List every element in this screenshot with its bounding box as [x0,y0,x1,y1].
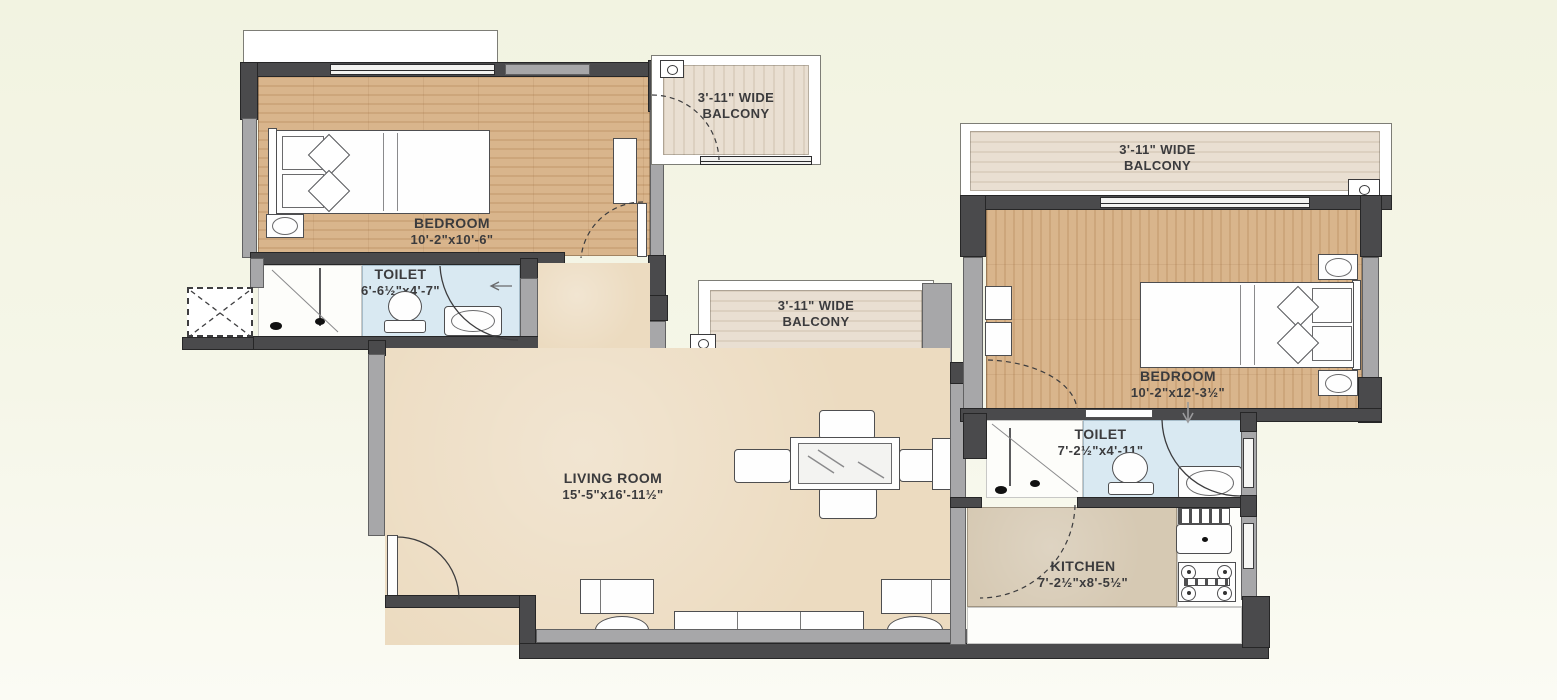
bed2-lamp-bottom [1325,374,1352,393]
balcony-center-label: 3'-11" WIDE BALCONY [710,298,922,330]
toilet1-shower-tap [315,318,325,325]
balcony-top-mid-sliding-window [700,156,812,165]
bed2-sheet-line1 [1240,285,1241,365]
balcony-top-mid-column [660,60,684,78]
dining-chair-bottom [819,487,877,519]
balcony-top-mid-line2: BALCONY [660,106,812,122]
bed1-lamp [272,217,298,235]
kitchen-label: KITCHEN 7'-2½"x8'-5½" [998,558,1168,591]
bedroom1-wall-top-light [505,64,590,75]
bedroom2-wall-left-dark [960,195,986,257]
armchair-right [881,579,952,614]
balcony-top-right-line1: 3'-11" WIDE [1055,142,1260,158]
bedroom2-wardrobe-a [985,286,1012,320]
toilet2-shower-pole [1009,428,1011,486]
armchair-left [580,579,654,614]
toilet1-wc-bowl [388,291,422,322]
living-wall-step-h [385,595,525,608]
bedroom2-wall-right-dark [1360,195,1382,257]
entrance-door-leaf [387,535,398,599]
service-shaft [187,287,253,337]
balcony-center-line1: 3'-11" WIDE [710,298,922,314]
toilet1-wall-left [250,258,264,288]
kitchen-window-1 [1243,438,1254,488]
living-wall-bottom-lining [536,629,967,643]
shaft-wall-bottom [182,337,254,350]
toilet2-wc-base [1108,482,1154,495]
living-wall-left [368,354,385,536]
living-wall-step-v [519,595,536,647]
bedroom2-label: BEDROOM 10'-2"x12'-3½" [1088,368,1268,401]
toilet2-wc-bowl [1112,452,1148,484]
toilet2-shower-tap [1030,480,1040,487]
bedroom1-wall-right-lower [648,255,666,300]
balcony-top-right-line2: BALCONY [1055,158,1260,174]
bedroom1-window [330,64,495,75]
roof-projection [243,30,498,63]
utility-strip [967,607,1242,644]
kitchen-sink-drain [1202,537,1208,542]
floor-plan: BEDROOM 10'-2"x10'-6" TOILET 6'-6½"x4'-7… [0,0,1557,700]
stove-grill [1184,578,1230,586]
balcony-top-mid-line1: 3'-11" WIDE [660,90,812,106]
bedroom1-wall-left-dark [240,62,258,120]
toilet2-wall-left-dark [963,413,987,459]
toilet2-dims: 7'-2½"x4'-11" [1028,443,1173,459]
kitchen-drainboard [1178,508,1230,524]
bedroom2-sliding-door [1100,197,1310,208]
kitchen-window-2 [1243,523,1254,569]
kitchen-floor [967,507,1177,607]
bedroom2-dims: 10'-2"x12'-3½" [1088,385,1268,401]
living-floor-upper [538,263,650,355]
plan-corner-bottom-right [1242,596,1270,648]
toilet2-washbasin-bowl [1186,470,1234,496]
living-name: LIVING ROOM [528,470,698,487]
kitchen-wall-top-left [950,497,982,508]
kitchen-dims: 7'-2½"x8'-5½" [998,575,1168,591]
toilet1-washbasin-bowl [451,310,495,332]
bedroom1-wall-left [242,118,257,258]
dining-table-glass [798,443,892,484]
bed1-sheet-line1 [383,133,384,211]
bedroom2-wall-left [963,257,983,410]
bedroom1-wardrobe [613,138,637,204]
living-dims: 15'-5"x16'-11½" [528,487,698,503]
bedroom1-door-leaf [637,203,647,257]
bedroom1-name: BEDROOM [368,215,536,232]
kitchen-wall-right-mid [1240,495,1257,517]
bedroom2-door-leaf [1085,409,1153,418]
living-label: LIVING ROOM 15'-5"x16'-11½" [528,470,698,503]
toilet1-wall-right-dark [520,258,538,280]
balcony-top-mid-label: 3'-11" WIDE BALCONY [660,90,812,122]
bed2-lamp-top [1325,258,1352,277]
stove-burner-3 [1181,586,1196,601]
bedroom2-name: BEDROOM [1088,368,1268,385]
toilet1-wall-right [520,278,538,338]
bedroom1-label: BEDROOM 10'-2"x10'-6" [368,215,536,248]
bed1-sheet-line2 [397,133,398,211]
kitchen-wall-right-cap-top [1240,412,1257,432]
toilet2-name: TOILET [1028,426,1173,443]
toilet1-wc-tank [384,320,426,333]
balcony-top-right-label: 3'-11" WIDE BALCONY [1055,142,1260,174]
armchair-right-back [931,580,932,613]
kitchen-name: KITCHEN [998,558,1168,575]
toilet2-drain [995,486,1007,494]
bedroom2-wall-right [1362,257,1379,379]
plan-wall-bottom [519,643,1269,659]
bedroom1-dims: 10'-2"x10'-6" [368,232,536,248]
armchair-left-back [600,580,601,613]
toilet2-label: TOILET 7'-2½"x4'-11" [1028,426,1173,459]
kitchen-wall-top-right [1077,497,1245,508]
dining-chair-top [819,410,875,440]
toilet1-drain [270,322,282,330]
balcony-center-line2: BALCONY [710,314,922,330]
bedroom1-wall-bottom [250,252,565,265]
dining-chair-left [734,449,791,483]
stove-burner-4 [1217,586,1232,601]
bed2-sheet-line2 [1254,285,1255,365]
toilet1-name: TOILET [328,266,473,283]
bedroom2-wardrobe-b [985,322,1012,356]
